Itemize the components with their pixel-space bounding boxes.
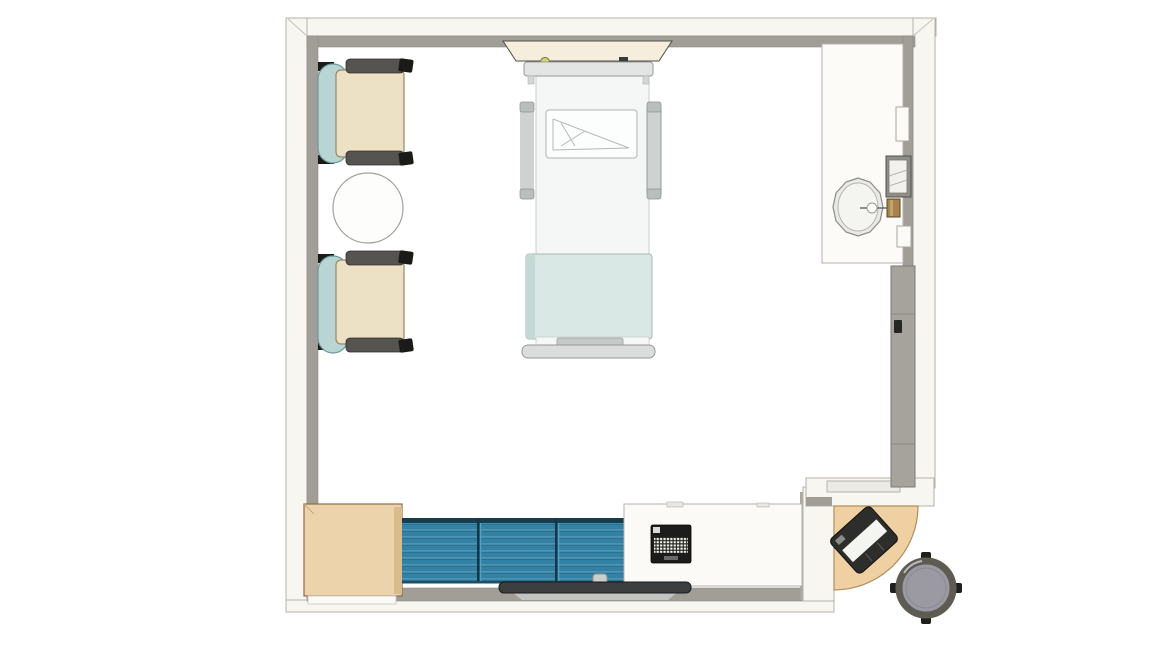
chair-foot: [398, 151, 414, 166]
chair-foot: [398, 58, 414, 73]
headwall-panel: [503, 41, 672, 61]
right-wall: [913, 18, 935, 488]
bed-rail-left: [520, 104, 534, 197]
faucet-highlight: [890, 200, 893, 216]
rail-cap: [520, 189, 534, 199]
wardrobe-kick: [308, 596, 396, 604]
keyboard-spacebar: [664, 556, 678, 560]
bench: [402, 518, 624, 584]
bed-caster: [528, 76, 534, 84]
desk-grommet: [667, 502, 683, 507]
desk-grommet: [757, 503, 769, 507]
floor-plan-canvas: [0, 0, 1166, 656]
faucet-base: [887, 199, 900, 217]
bed-head-bar: [524, 62, 653, 76]
footwall-desk: [624, 502, 802, 586]
chair-foot: [398, 338, 414, 353]
wardrobe-side-face: [394, 507, 402, 594]
bed-rail-right: [647, 104, 661, 197]
observation-window: [827, 481, 900, 492]
bench-divider: [555, 518, 558, 583]
keyboard-keys: [654, 537, 688, 553]
wall-shelf: [896, 107, 909, 141]
bench-divider-highlight: [558, 523, 559, 583]
wardrobe-body: [304, 504, 402, 596]
door-handle: [894, 320, 902, 333]
faucet-spout: [867, 203, 877, 213]
chair-armrest: [346, 338, 404, 352]
rail-cap: [647, 189, 661, 199]
rail-cap: [647, 102, 661, 112]
chair-foot: [398, 250, 414, 265]
towel-dispenser-face: [889, 160, 907, 193]
chair-armrest: [346, 251, 404, 265]
bench-divider-highlight: [480, 523, 481, 583]
floor-plan-drawing: [0, 0, 1166, 656]
top-wall: [286, 18, 936, 36]
guest-chair-2: [318, 250, 414, 353]
bed-caster: [643, 76, 649, 84]
vanity: [822, 44, 911, 263]
sliding-door: [891, 266, 915, 487]
chair-seat: [336, 70, 404, 157]
wardrobe: [304, 504, 402, 604]
chair-seat: [336, 260, 404, 344]
blanket-fold-edge: [526, 254, 535, 339]
sliding-door-panel: [891, 266, 915, 487]
rail-cap: [520, 102, 534, 112]
tv-screen: [499, 582, 691, 593]
blanket: [526, 254, 652, 339]
footboard: [522, 345, 655, 358]
soap-dispenser: [897, 226, 911, 247]
bench-divider: [477, 518, 480, 583]
chair-armrest: [346, 59, 404, 73]
guest-chair-1: [318, 58, 414, 166]
side-table: [333, 173, 403, 243]
keyboard-label: [653, 527, 660, 533]
alcove-wall-shade: [806, 497, 832, 506]
bench-texture: [402, 523, 624, 583]
chair-armrest: [346, 151, 404, 165]
